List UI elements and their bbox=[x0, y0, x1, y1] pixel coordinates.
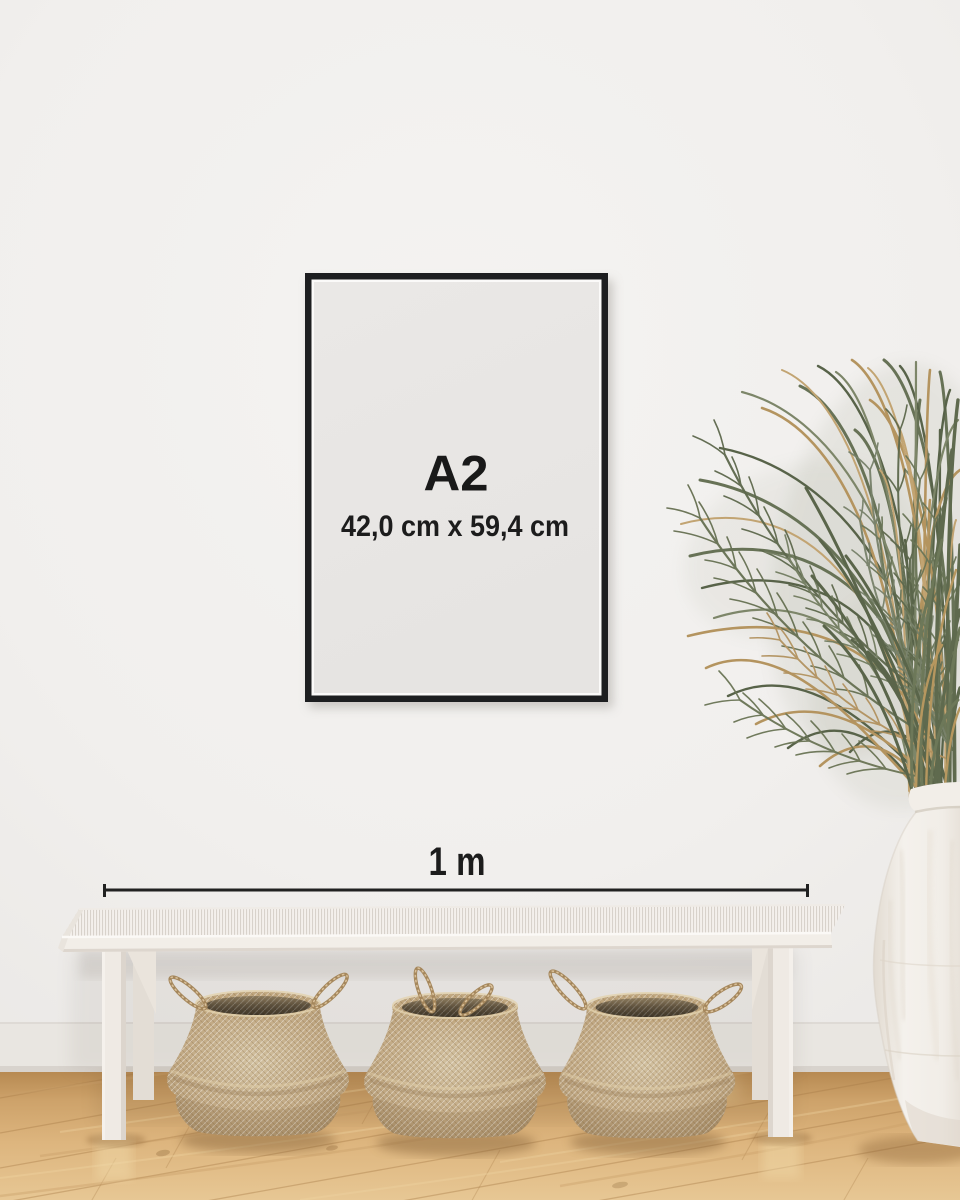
svg-text:1 m: 1 m bbox=[429, 840, 486, 884]
svg-text:42,0 cm x 59,4 cm: 42,0 cm x 59,4 cm bbox=[341, 510, 569, 543]
svg-text:A2: A2 bbox=[424, 446, 489, 502]
